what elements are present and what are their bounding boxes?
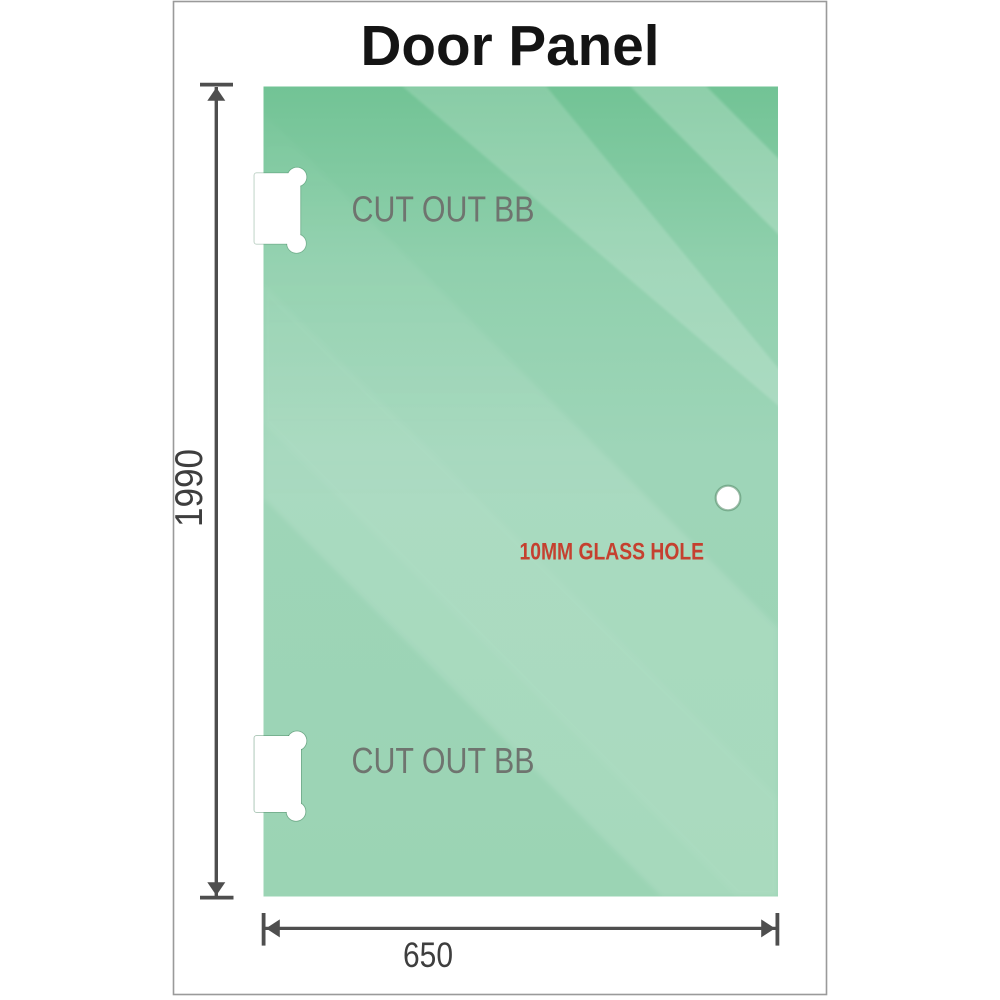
svg-text:650: 650 [403, 936, 453, 975]
svg-text:1990: 1990 [168, 449, 211, 527]
svg-text:Door Panel: Door Panel [361, 14, 660, 78]
svg-text:CUT OUT BB: CUT OUT BB [352, 740, 535, 781]
svg-text:CUT OUT BB: CUT OUT BB [352, 189, 535, 230]
svg-text:10MM GLASS HOLE: 10MM GLASS HOLE [520, 539, 705, 566]
